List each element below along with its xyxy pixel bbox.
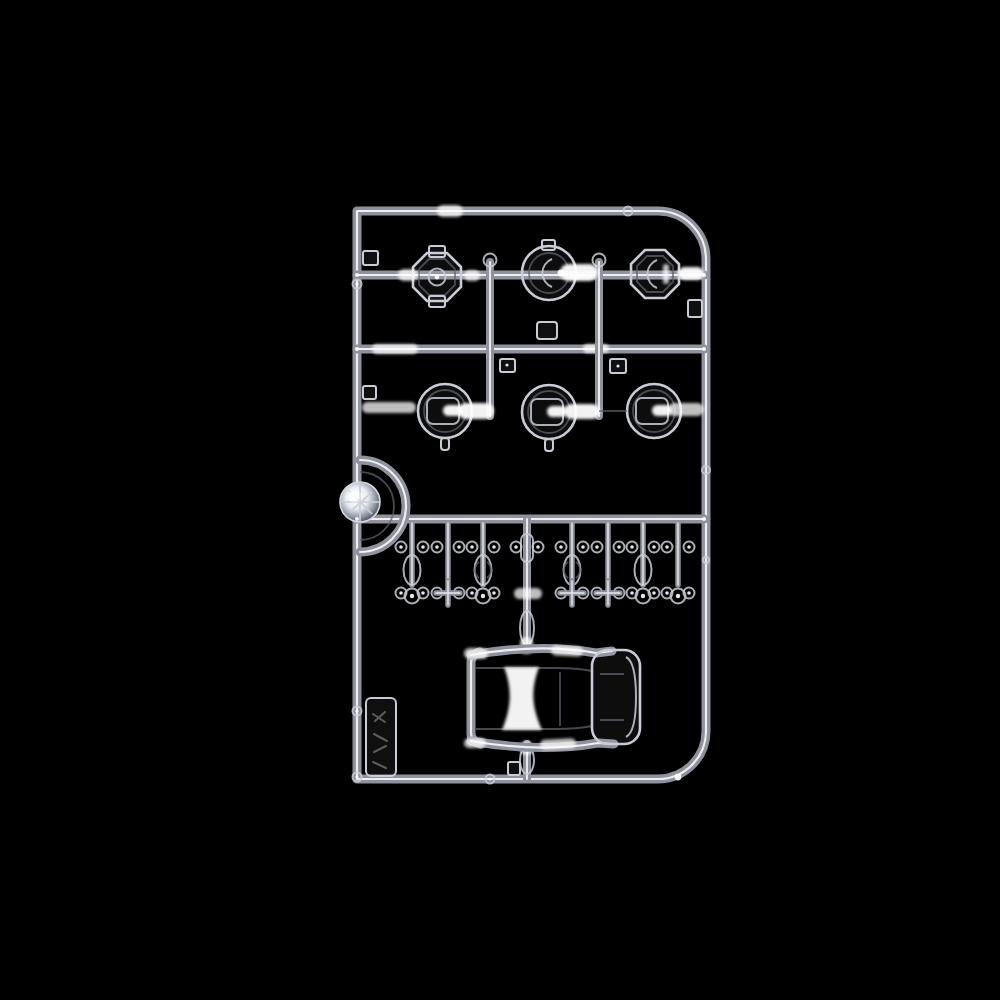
runner-row-2 [357,344,704,354]
black-background [0,0,1000,1000]
molded-id-tag [366,698,396,776]
photo-stage [0,0,1000,1000]
sprue-photo [0,0,1000,1000]
